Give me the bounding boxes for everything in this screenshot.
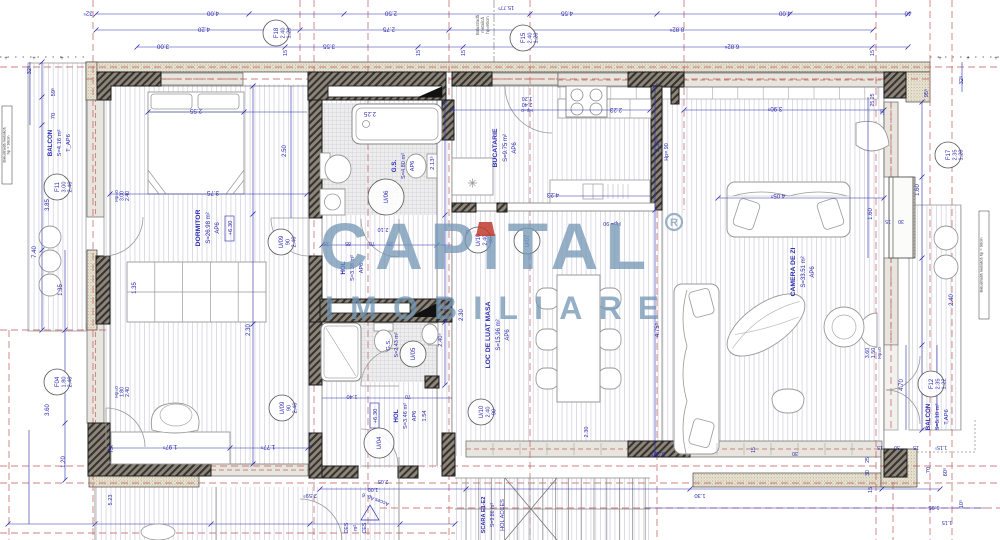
svg-text:hp = 90cm: hp = 90cm	[6, 135, 11, 154]
svg-text:59⁵: 59⁵	[50, 87, 57, 96]
svg-text:Hp=0: Hp=0	[877, 347, 883, 359]
svg-text:3.85: 3.85	[45, 199, 51, 211]
svg-text:1.60: 1.60	[915, 184, 921, 196]
svg-text:F17: F17	[946, 149, 952, 160]
svg-text:2.50: 2.50	[384, 10, 397, 17]
svg-text:CAPıTAL: CAPıTAL	[320, 209, 654, 283]
svg-text:2.30: 2.30	[246, 324, 252, 336]
svg-text:70: 70	[405, 393, 411, 399]
svg-text:15: 15	[461, 50, 467, 56]
svg-text:4.20: 4.20	[197, 26, 210, 33]
svg-text:1.35: 1.35	[58, 284, 64, 296]
svg-text:15: 15	[868, 487, 874, 493]
svg-text:F04: F04	[55, 376, 61, 387]
svg-text:70: 70	[51, 113, 57, 119]
svg-text:S=33.51 m²: S=33.51 m²	[801, 256, 807, 287]
svg-text:15: 15	[913, 444, 919, 450]
svg-text:AP6: AP6	[512, 142, 518, 154]
svg-text:1.60: 1.60	[868, 208, 874, 220]
svg-text:15: 15	[885, 218, 891, 224]
svg-text:6.82⁵: 6.82⁵	[724, 43, 739, 50]
svg-text:1.40: 1.40	[347, 393, 358, 399]
svg-text:10⁵: 10⁵	[958, 500, 965, 509]
svg-text:G.S.: G.S.	[391, 160, 398, 173]
svg-text:F15: F15	[521, 32, 527, 43]
svg-text:BALCON: BALCON	[925, 403, 932, 430]
svg-text:3.60: 3.60	[45, 404, 51, 416]
svg-text:2.40: 2.40	[949, 294, 955, 306]
svg-text:m²: m²	[353, 525, 359, 531]
svg-text:+6.30: +6.30	[373, 409, 379, 424]
svg-text:2.40⁵: 2.40⁵	[437, 333, 444, 347]
svg-text:4.00: 4.00	[206, 10, 219, 17]
svg-text:HOL: HOL	[393, 409, 400, 422]
svg-text:30: 30	[880, 109, 886, 115]
svg-text:+: +	[938, 56, 942, 62]
svg-text:DORMITOR: DORMITOR	[195, 209, 202, 246]
svg-text:2.55: 2.55	[189, 107, 202, 114]
svg-text:1.50: 1.50	[871, 348, 877, 359]
svg-text:2.40: 2.40	[68, 182, 74, 193]
svg-text:4.55: 4.55	[560, 10, 573, 17]
svg-text:U/06: U/06	[384, 190, 390, 203]
svg-text:CES: CES	[344, 522, 350, 533]
svg-text:SCARA E1-E2: SCARA E1-E2	[481, 497, 487, 534]
svg-text:S=9.86 m²: S=9.86 m²	[490, 503, 496, 527]
svg-text:+: +	[60, 56, 64, 62]
svg-text:75: 75	[109, 447, 115, 453]
svg-text:1.54: 1.54	[422, 410, 428, 422]
svg-text:7.40: 7.40	[32, 246, 38, 258]
svg-text:S=9.75 m²: S=9.75 m²	[503, 134, 509, 162]
svg-text:BUCATARIE: BUCATARIE	[492, 128, 499, 167]
svg-text:2.59⁵: 2.59⁵	[303, 492, 317, 499]
svg-text:8.82⁵: 8.82⁵	[669, 26, 684, 33]
svg-text:5.23: 5.23	[108, 495, 114, 506]
svg-text:1.15: 1.15	[942, 519, 953, 525]
svg-text:3.75: 3.75	[206, 189, 219, 196]
svg-text:T_AP6: T_AP6	[66, 134, 72, 152]
svg-text:30: 30	[792, 450, 798, 456]
svg-text:Hp= 90: Hp= 90	[664, 143, 670, 161]
svg-text:25,25: 25,25	[870, 93, 876, 106]
svg-text:+: +	[966, 56, 970, 62]
svg-text:1.22: 1.22	[942, 379, 948, 390]
svg-text:Balustradă metalică hp = 90cm: Balustradă metalică hp = 90cm	[979, 237, 984, 293]
svg-text:1.95: 1.95	[928, 504, 939, 510]
svg-text:AP6: AP6	[505, 329, 511, 341]
svg-text:15: 15	[751, 447, 757, 453]
svg-text:1.20: 1.20	[959, 150, 965, 161]
svg-text:30: 30	[898, 218, 904, 224]
svg-text:IMOBILIARE: IMOBILIARE	[325, 290, 675, 326]
svg-text:95⁵: 95⁵	[923, 88, 930, 97]
svg-text:AP6: AP6	[410, 161, 416, 172]
svg-text:G.S.: G.S.	[386, 339, 392, 351]
svg-text:70: 70	[926, 467, 932, 473]
svg-text:2.50: 2.50	[282, 145, 288, 157]
svg-text:2.75: 2.75	[382, 26, 395, 33]
svg-text:32⁵: 32⁵	[958, 75, 965, 84]
svg-text:3.90⁵: 3.90⁵	[767, 105, 782, 112]
svg-text:F11: F11	[55, 181, 61, 192]
svg-text:15: 15	[283, 50, 289, 56]
svg-text:2.40: 2.40	[68, 377, 74, 388]
svg-text:2.05: 2.05	[378, 478, 389, 484]
svg-text:32⁵: 32⁵	[83, 10, 93, 17]
svg-text:1.35: 1.35	[132, 282, 138, 294]
svg-text:2.30: 2.30	[584, 427, 590, 438]
svg-text:60⁵: 60⁵	[942, 467, 949, 476]
svg-text:30: 30	[894, 444, 900, 450]
svg-text:15: 15	[870, 50, 876, 56]
svg-text:15: 15	[416, 50, 422, 56]
svg-text:2.13⁵: 2.13⁵	[429, 156, 436, 170]
svg-text:AP6: AP6	[215, 222, 221, 234]
svg-text:U/05: U/05	[411, 347, 417, 360]
svg-text:1.77⁵: 1.77⁵	[260, 443, 275, 450]
svg-text:2.40: 2.40	[292, 237, 298, 248]
svg-text:2.23: 2.23	[609, 106, 622, 113]
svg-text:2.30⁵: 2.30⁵	[654, 138, 661, 152]
svg-text:CAMERA DE ZI: CAMERA DE ZI	[790, 247, 797, 296]
svg-text:30: 30	[865, 470, 871, 476]
svg-text:1.97⁵: 1.97⁵	[162, 443, 177, 450]
svg-text:F12: F12	[929, 378, 935, 389]
svg-text:1.30: 1.30	[694, 492, 705, 498]
svg-text:2.40: 2.40	[125, 387, 131, 397]
svg-text:S=3.46 m²: S=3.46 m²	[403, 403, 409, 429]
svg-text:15.77⁵: 15.77⁵	[498, 4, 514, 11]
svg-text:4.70: 4.70	[899, 379, 905, 391]
svg-text:+6.30: +6.30	[228, 221, 234, 236]
svg-text:8.22⁵: 8.22⁵	[650, 450, 665, 457]
svg-text:4.23: 4.23	[546, 191, 559, 198]
svg-text:AP6: AP6	[810, 266, 816, 278]
svg-text:1.00: 1.00	[368, 486, 379, 492]
svg-text:4.05⁵: 4.05⁵	[770, 192, 785, 199]
svg-text:1.15⁵: 1.15⁵	[935, 444, 947, 450]
svg-text:2.40: 2.40	[125, 191, 131, 201]
svg-text:1.20: 1.20	[287, 28, 293, 39]
svg-text:R: R	[670, 217, 678, 229]
svg-text:F18: F18	[274, 27, 280, 38]
svg-text:1.20: 1.20	[534, 33, 540, 44]
svg-text:S=4.80 m²: S=4.80 m²	[401, 153, 407, 179]
svg-text:AP6: AP6	[412, 411, 418, 422]
svg-text:CES: CES	[362, 522, 368, 533]
svg-text:Hp=0: Hp=0	[521, 107, 533, 113]
svg-text:3.00: 3.00	[156, 43, 169, 50]
svg-text:U/09: U/09	[280, 401, 286, 414]
svg-text:S=2.43 m²: S=2.43 m²	[394, 332, 400, 357]
svg-text:1.20: 1.20	[61, 456, 67, 468]
svg-text:32⁵: 32⁵	[26, 65, 33, 74]
svg-text:1.20: 1.20	[522, 95, 533, 101]
svg-text:U/09: U/09	[279, 235, 285, 248]
svg-text:2.40: 2.40	[293, 403, 299, 414]
svg-text:+: +	[32, 56, 36, 62]
svg-text:+: +	[994, 56, 998, 62]
svg-text:40: 40	[904, 10, 911, 17]
svg-text:BALCON: BALCON	[47, 129, 54, 156]
svg-text:4.00: 4.00	[778, 10, 791, 17]
svg-text:2.25: 2.25	[363, 110, 376, 117]
svg-text:hp=90cm: hp=90cm	[485, 16, 490, 34]
svg-text:U/10: U/10	[479, 405, 485, 418]
svg-text:25: 25	[865, 457, 871, 463]
svg-text:S=26.98 m²: S=26.98 m²	[206, 212, 212, 243]
svg-text:HOL ACCES: HOL ACCES	[500, 499, 506, 531]
svg-text:U/04: U/04	[377, 436, 383, 449]
svg-text:S=4.16 m²: S=4.16 m²	[57, 129, 63, 156]
svg-text:S=5.10 m²: S=5.10 m²	[935, 403, 941, 430]
svg-text:3.55: 3.55	[322, 43, 335, 50]
svg-text:15: 15	[877, 444, 883, 450]
svg-text:+: +	[4, 56, 8, 62]
svg-text:90: 90	[492, 409, 498, 415]
svg-text:T,AP6: T,AP6	[944, 409, 950, 424]
svg-text:2.40: 2.40	[522, 101, 533, 107]
